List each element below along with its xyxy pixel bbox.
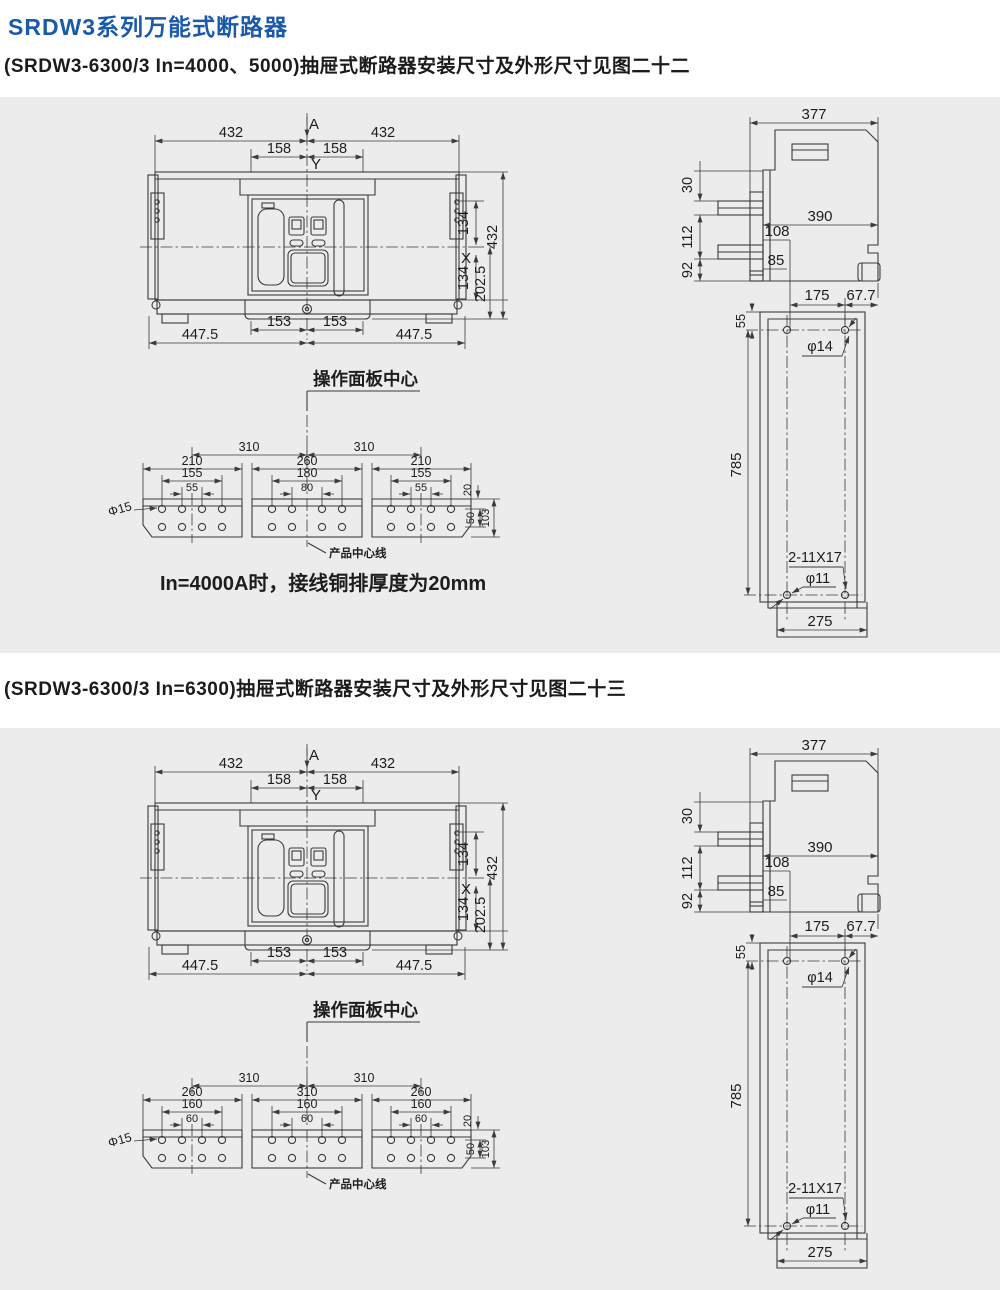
dim-447p5-right: 447.5 [396,327,432,343]
dim-bus2-inner: 60 [301,1113,313,1125]
dim-thickness-20: 20 [462,1115,474,1127]
dim-390: 390 [807,208,832,225]
dim-92: 92 [680,262,696,278]
dim-134-lower: 134 [456,266,472,290]
dim-85: 85 [768,883,785,900]
dim-30: 30 [680,808,696,824]
dim-85: 85 [768,252,785,269]
dim-bus2-inner: 80 [301,482,313,494]
dim-153-left: 153 [267,945,291,961]
dim-bus1-mid: 155 [182,466,203,480]
dim-432-left: 432 [219,756,243,772]
dim-134-upper: 134 [456,842,472,866]
bus-hole-dia: Φ15 [106,499,133,519]
dim-bus3-mid: 155 [411,466,432,480]
dim-108: 108 [764,854,789,871]
dim-pitch-left: 310 [239,1071,260,1085]
dim-447p5-right: 447.5 [396,958,432,974]
section-heading-fig22: (SRDW3-6300/3 In=4000、5000)抽屉式断路器安装尺寸及外形… [4,51,690,78]
dim-bus1-inner: 60 [186,1113,198,1125]
hole-dia-14: φ14 [807,339,833,355]
dim-377: 377 [801,106,826,123]
dim-432-left: 432 [219,125,243,141]
datum-a: A [309,116,319,133]
dim-432-height: 432 [485,856,501,880]
hole-dia-11: φ11 [806,571,830,587]
busbar-note: In=4000A时，接线铜排厚度为20mm [160,571,486,595]
dim-108: 108 [764,223,789,240]
dim-432-height: 432 [485,225,501,249]
dim-153-right: 153 [323,945,347,961]
dim-153-left: 153 [267,314,291,330]
dim-rowgap-50: 50 [465,512,477,524]
dim-bus3-mid: 160 [411,1097,432,1111]
hole-dia-14: φ14 [807,970,833,986]
dim-bus3-inner: 60 [415,1113,427,1125]
dim-202p5: 202.5 [473,266,489,302]
dim-153-right: 153 [323,314,347,330]
page-title: SRDW3系列万能式断路器 [8,8,288,42]
front-view-geometry [140,113,508,495]
figure-23-panel: 432 432 158 158 A Y 134 X 134 202.5 432 … [0,728,1000,1290]
product-centerline-label: 产品中心线 [329,1177,387,1191]
dim-thickness-20: 20 [462,484,474,496]
dim-55: 55 [733,945,748,959]
dim-92: 92 [680,893,696,909]
datum-a: A [309,747,319,764]
dim-bus2-mid: 180 [297,466,318,480]
datum-y: Y [311,156,321,173]
dim-bus1-inner: 55 [186,482,198,494]
dim-202p5: 202.5 [473,897,489,933]
figure-22-panel: 432 432 158 158 A Y 134 X 134 202.5 432 … [0,97,1000,653]
dim-112: 112 [680,225,696,248]
dim-275: 275 [807,613,832,630]
dim-785: 785 [728,1083,745,1108]
dim-depth-103: 103 [480,1140,492,1158]
dim-rowgap-50: 50 [465,1143,477,1155]
dim-175: 175 [804,287,829,304]
panel-center-label: 操作面板中心 [313,369,418,389]
dim-134-lower: 134 [456,897,472,921]
dim-390: 390 [807,839,832,856]
dim-785: 785 [728,452,745,477]
dim-bus2-mid: 160 [297,1097,318,1111]
dim-pitch-right: 310 [354,440,375,454]
dim-432-right: 432 [371,756,395,772]
datum-x: X [461,881,471,898]
dim-55: 55 [733,314,748,328]
dim-134-upper: 134 [456,211,472,235]
panel-center-label: 操作面板中心 [313,1000,418,1020]
figure-22-drawing: 432 432 158 158 A Y 134 X 134 202.5 432 … [0,97,1000,653]
dim-bus1-mid: 160 [182,1097,203,1111]
slot-label-11x17: 2-11X17 [788,1181,842,1197]
datum-y: Y [311,787,321,804]
slot-label-11x17: 2-11X17 [788,550,842,566]
dim-158-right: 158 [323,141,347,157]
datum-x: X [461,250,471,267]
dim-432-right: 432 [371,125,395,141]
dim-bus3-inner: 55 [415,482,427,494]
figure-23-drawing: 432 432 158 158 A Y 134 X 134 202.5 432 … [0,728,1000,1284]
dim-158-left: 158 [267,772,291,788]
dim-pitch-right: 310 [354,1071,375,1085]
dim-pitch-left: 310 [239,440,260,454]
bus-hole-dia: Φ15 [106,1130,133,1150]
dim-275: 275 [807,1244,832,1261]
dim-158-left: 158 [267,141,291,157]
dim-67p7: 67.7 [846,287,875,304]
dim-175: 175 [804,918,829,935]
section-heading-fig23: (SRDW3-6300/3 In=6300)抽屉式断路器安装尺寸及外形尺寸见图二… [4,674,626,701]
product-centerline-label: 产品中心线 [329,546,387,560]
dim-67p7: 67.7 [846,918,875,935]
dim-447p5-left: 447.5 [182,327,218,343]
dim-447p5-left: 447.5 [182,958,218,974]
dim-30: 30 [680,177,696,193]
dim-depth-103: 103 [480,509,492,527]
dim-377: 377 [801,737,826,754]
dim-158-right: 158 [323,772,347,788]
dim-112: 112 [680,856,696,879]
hole-dia-11: φ11 [806,1202,830,1218]
